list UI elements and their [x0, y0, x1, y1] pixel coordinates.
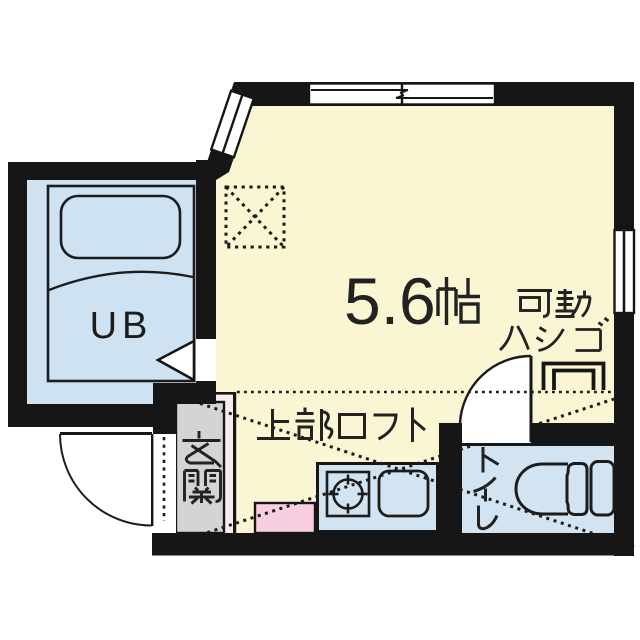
svg-text:5.6: 5.6: [344, 264, 436, 338]
svg-text:UB: UB: [90, 305, 153, 347]
